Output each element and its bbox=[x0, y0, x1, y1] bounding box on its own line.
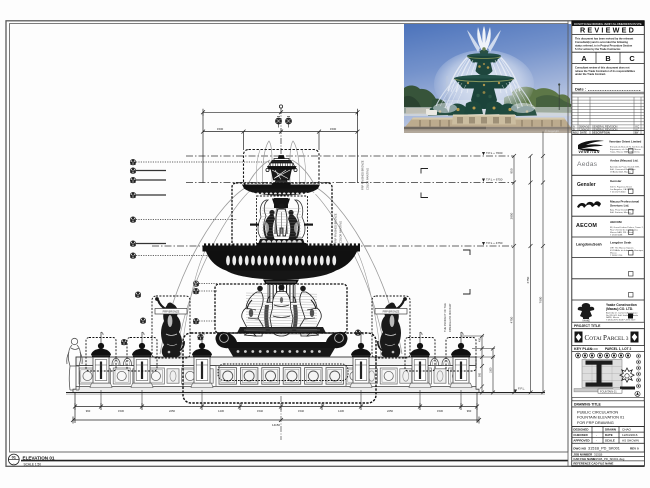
svg-text:DWG NO: DWG NO bbox=[573, 446, 586, 450]
svg-text:1500: 1500 bbox=[217, 127, 224, 131]
svg-text:Venetian Orient Limited: Venetian Orient Limited bbox=[609, 140, 642, 144]
svg-text:Edif. Fortuna, Macau: Edif. Fortuna, Macau bbox=[610, 211, 631, 214]
svg-text:DRAWING TITLE: DRAWING TITLE bbox=[574, 403, 601, 407]
svg-text:2250: 2250 bbox=[387, 409, 393, 413]
svg-text:FOUNTAIN 01: FOUNTAIN 01 bbox=[600, 389, 617, 393]
svg-text:AECOM: AECOM bbox=[576, 223, 597, 229]
svg-text:AS SHOWN: AS SHOWN bbox=[622, 439, 639, 443]
svg-text:12/04/2016: 12/04/2016 bbox=[622, 433, 638, 437]
svg-text:This document has been revised: This document has been revised by the re… bbox=[575, 37, 633, 41]
svg-text:-: - bbox=[13, 462, 14, 466]
svg-text:Services Ltd.: Services Ltd. bbox=[610, 203, 629, 207]
svg-text:DRAWN: DRAWN bbox=[605, 428, 616, 432]
svg-text:C: C bbox=[629, 54, 635, 63]
svg-text:7600: 7600 bbox=[539, 296, 543, 303]
svg-text:REVIEWED: REVIEWED bbox=[580, 26, 636, 35]
svg-text:960: 960 bbox=[86, 409, 91, 413]
svg-text:T.P.L + 6750: T.P.L + 6750 bbox=[486, 178, 503, 182]
svg-text:JOB NUMBER: JOB NUMBER bbox=[573, 453, 592, 457]
svg-text:CAD FILE NAME: CAD FILE NAME bbox=[573, 457, 595, 461]
svg-text:1500: 1500 bbox=[330, 127, 337, 131]
svg-text:T 2833 1710: T 2833 1710 bbox=[610, 255, 623, 257]
svg-text:T 2533 5088: T 2533 5088 bbox=[610, 235, 623, 237]
svg-text:Gensler: Gensler bbox=[610, 179, 622, 183]
svg-text:status referred. to in Projec: status referred. to in Project Procedure… bbox=[575, 43, 633, 47]
svg-text:FRP BRONZE: FRP BRONZE bbox=[383, 310, 400, 314]
svg-text:Date :: Date : bbox=[575, 86, 586, 91]
svg-text:5.4 for action by the Trade Co: 5.4 for action by the Trade Contractor. bbox=[575, 47, 621, 51]
svg-text:3151B: 3151B bbox=[594, 453, 602, 457]
svg-text:1430: 1430 bbox=[338, 409, 344, 413]
svg-text:1540: 1540 bbox=[257, 409, 263, 413]
svg-text:COLOR PAINTING: COLOR PAINTING bbox=[366, 168, 370, 190]
svg-text:CHECKED: CHECKED bbox=[573, 433, 587, 437]
svg-text:REFERENCE CAD FILE NAME: REFERENCE CAD FILE NAME bbox=[573, 461, 613, 465]
svg-text:COLOR PAINTING: COLOR PAINTING bbox=[339, 221, 343, 243]
svg-text:900: 900 bbox=[479, 372, 482, 377]
svg-text:3151B_PD_SK001.dwg: 3151B_PD_SK001.dwg bbox=[594, 457, 625, 461]
svg-text:1430: 1430 bbox=[218, 409, 224, 413]
svg-text:1500: 1500 bbox=[490, 367, 493, 373]
svg-text:450: 450 bbox=[479, 337, 482, 342]
svg-text:2850: 2850 bbox=[510, 212, 514, 219]
svg-text:Gensler: Gensler bbox=[577, 182, 596, 188]
svg-text:ELEVATION 01: ELEVATION 01 bbox=[23, 455, 55, 460]
svg-text:6750: 6750 bbox=[526, 276, 530, 283]
svg-text:A: A bbox=[581, 54, 587, 63]
svg-text:DESIGNED: DESIGNED bbox=[573, 428, 588, 432]
svg-text:PROJECT TITLE: PROJECT TITLE bbox=[574, 324, 601, 328]
svg-text:PARCEL 1, LOT 2: PARCEL 1, LOT 2 bbox=[605, 347, 631, 351]
svg-text:4750: 4750 bbox=[510, 316, 514, 323]
svg-text:Consultant review of this docu: Consultant review of this document does … bbox=[575, 65, 630, 69]
svg-text:SCALE: SCALE bbox=[605, 439, 615, 443]
svg-text:VENETIAN: VENETIAN bbox=[578, 150, 599, 154]
svg-text:REV 0: REV 0 bbox=[630, 446, 639, 450]
svg-text:1540: 1540 bbox=[298, 409, 304, 413]
svg-text:FIBERGLASS MOCKUP: FIBERGLASS MOCKUP bbox=[448, 303, 452, 332]
svg-text:3151B_PD_SK001: 3151B_PD_SK001 bbox=[588, 447, 620, 451]
svg-text:under the Trade Contract.: under the Trade Contract. bbox=[575, 72, 606, 76]
svg-text:THE PRODUCT OF THE: THE PRODUCT OF THE bbox=[443, 303, 447, 332]
svg-text:2250: 2250 bbox=[169, 409, 175, 413]
svg-text:T.P.L + 4750: T.P.L + 4750 bbox=[486, 241, 503, 245]
svg-text:960: 960 bbox=[467, 409, 472, 413]
svg-text:AECOM: AECOM bbox=[610, 220, 622, 224]
svg-text:F.F.L.: F.F.L. bbox=[518, 387, 525, 391]
svg-text:Aedas: Aedas bbox=[577, 161, 598, 168]
svg-text:850: 850 bbox=[510, 168, 514, 173]
svg-text:CHAO: CHAO bbox=[622, 428, 632, 432]
svg-text:APPROVED: APPROVED bbox=[573, 439, 589, 443]
svg-text:1530: 1530 bbox=[437, 409, 443, 413]
svg-text:DATE: DATE bbox=[605, 433, 613, 437]
svg-text:FRP FINISHED BRONZE: FRP FINISHED BRONZE bbox=[334, 213, 338, 243]
svg-text:© Copyright: © Copyright bbox=[545, 129, 559, 133]
svg-text:Langdon Seah: Langdon Seah bbox=[610, 241, 631, 245]
svg-text:1530: 1530 bbox=[118, 409, 124, 413]
svg-text:-: - bbox=[596, 433, 597, 437]
svg-text:FRP BRONZE: FRP BRONZE bbox=[163, 310, 180, 314]
svg-text:T 213.327.3600: T 213.327.3600 bbox=[610, 192, 626, 194]
svg-text:1:1000: 1:1000 bbox=[590, 347, 598, 351]
svg-text:Aedas (Macau) Ltd.: Aedas (Macau) Ltd. bbox=[610, 159, 639, 163]
svg-text:COTAI PARCEL 3: COTAI PARCEL 3 bbox=[585, 334, 629, 342]
svg-text:-: - bbox=[596, 439, 597, 443]
svg-text:B: B bbox=[605, 54, 610, 63]
svg-text:FOR FRP DRAWING: FOR FRP DRAWING bbox=[577, 420, 614, 425]
svg-text:FRP FINISHED BRONZE: FRP FINISHED BRONZE bbox=[361, 160, 365, 190]
svg-text:Consultant(s) and is accorded: Consultant(s) and is accorded the follow… bbox=[575, 40, 628, 44]
svg-text:14150: 14150 bbox=[272, 423, 280, 427]
svg-text:SCALE 1:50: SCALE 1:50 bbox=[24, 462, 42, 466]
svg-text:T.P.L + 7600: T.P.L + 7600 bbox=[486, 151, 503, 155]
svg-text:(Macau) CO. LTD.: (Macau) CO. LTD. bbox=[606, 307, 633, 311]
svg-text:01: 01 bbox=[12, 454, 17, 459]
svg-text:Taipa, Macau SAR, P.R. China: Taipa, Macau SAR, P.R. China bbox=[610, 151, 640, 154]
svg-text:T (853) 2875 3618 F 2875 361: T (853) 2875 3618 F 2875 3619 bbox=[606, 319, 636, 321]
svg-text:relieve the Trade Contractor o: relieve the Trade Contractor of its resp… bbox=[575, 69, 636, 73]
svg-text:Langdon&Seah: Langdon&Seah bbox=[576, 243, 602, 247]
